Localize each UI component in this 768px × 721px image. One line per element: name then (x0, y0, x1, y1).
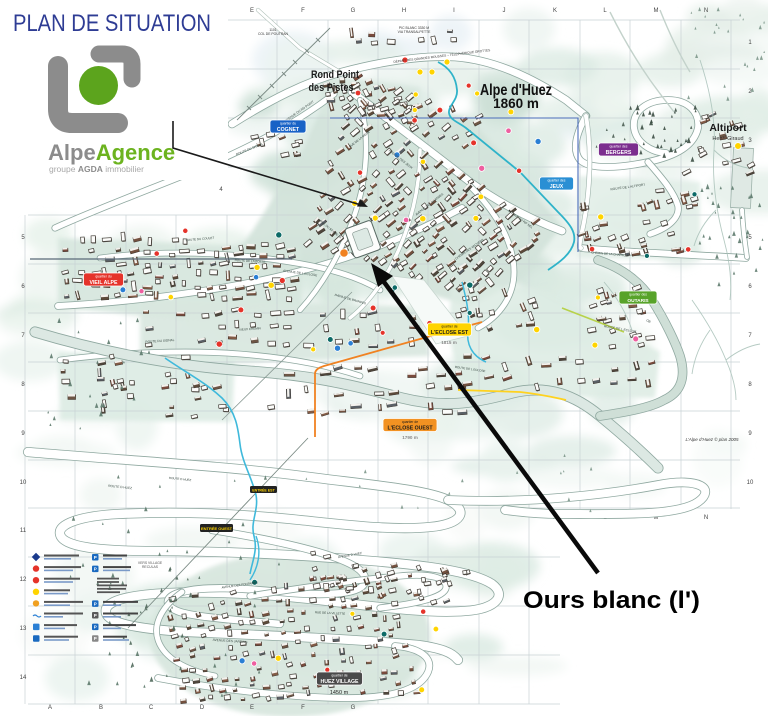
svg-text:12: 12 (20, 577, 27, 583)
svg-text:ENTRÉE EST: ENTRÉE EST (252, 488, 275, 493)
svg-text:Rond Point: Rond Point (311, 69, 359, 81)
svg-text:11: 11 (20, 528, 27, 534)
svg-text:COL DE POUTRAN: COL DE POUTRAN (258, 32, 289, 36)
svg-text:1815 m: 1815 m (441, 340, 457, 345)
svg-text:B: B (99, 705, 103, 711)
svg-text:10: 10 (747, 480, 754, 486)
svg-text:des Pistes: des Pistes (309, 82, 354, 94)
svg-text:M: M (654, 8, 659, 14)
svg-text:quartier du: quartier du (95, 275, 111, 279)
svg-text:quartier de: quartier de (402, 420, 418, 424)
svg-text:F: F (301, 8, 305, 14)
svg-text:1450 m: 1450 m (330, 690, 349, 696)
svg-text:HUEZ VILLAGE: HUEZ VILLAGE (320, 679, 359, 685)
svg-text:Altiport: Altiport (709, 122, 747, 134)
svg-text:RECULAS: RECULAS (142, 565, 159, 569)
svg-text:1790 m: 1790 m (402, 435, 418, 440)
svg-text:P: P (94, 555, 97, 560)
svg-text:VIA TRANSALPETTE: VIA TRANSALPETTE (398, 30, 431, 34)
svg-text:COGNET: COGNET (277, 127, 300, 133)
svg-text:quartier de: quartier de (441, 325, 457, 329)
svg-text:P: P (94, 636, 97, 641)
svg-text:P: P (94, 567, 97, 572)
svg-text:D: D (200, 705, 205, 711)
svg-text:P: P (94, 625, 97, 630)
svg-text:groupe AGDA immobilier: groupe AGDA immobilier (49, 164, 144, 174)
svg-text:F: F (301, 705, 305, 711)
svg-text:P: P (94, 613, 97, 618)
svg-text:ENTRÉE OUEST: ENTRÉE OUEST (201, 526, 233, 531)
svg-text:E: E (250, 705, 254, 711)
svg-text:G: G (351, 705, 356, 711)
svg-text:BERGERS: BERGERS (606, 150, 632, 156)
svg-text:Ours blanc (l'): Ours blanc (l') (523, 587, 700, 614)
svg-text:G: G (351, 8, 356, 14)
svg-text:VIEIL ALPE: VIEIL ALPE (90, 280, 119, 286)
svg-text:JEUX: JEUX (550, 184, 564, 190)
svg-text:quartier des: quartier des (548, 179, 566, 183)
svg-text:quartier des: quartier des (610, 145, 628, 149)
svg-text:A: A (48, 705, 52, 711)
svg-text:K: K (553, 8, 557, 14)
svg-text:14: 14 (20, 675, 27, 681)
svg-text:quartier du: quartier du (280, 122, 296, 126)
svg-text:L'ECLOSE EST: L'ECLOSE EST (431, 330, 469, 336)
svg-text:1860 m: 1860 m (493, 96, 539, 111)
svg-text:N: N (704, 515, 708, 521)
svg-text:N: N (704, 8, 708, 14)
svg-text:E: E (250, 8, 254, 14)
svg-text:Henri Giraud: Henri Giraud (712, 136, 743, 142)
svg-text:quartier de: quartier de (331, 674, 347, 678)
svg-text:13: 13 (20, 626, 27, 632)
svg-text:10: 10 (20, 480, 27, 486)
svg-text:OUTARIS: OUTARIS (627, 298, 649, 304)
svg-text:C: C (149, 705, 154, 711)
svg-text:P: P (94, 601, 97, 606)
svg-text:J: J (503, 8, 506, 14)
svg-text:PLAN DE SITUATION: PLAN DE SITUATION (13, 10, 211, 37)
svg-text:L’Alpe d’Huez © plan 2005: L’Alpe d’Huez © plan 2005 (685, 436, 739, 442)
svg-text:quartier des: quartier des (629, 293, 647, 297)
svg-text:H: H (402, 8, 406, 14)
svg-text:L'ECLOSE OUEST: L'ECLOSE OUEST (387, 426, 433, 432)
svg-text:AlpeAgence: AlpeAgence (48, 140, 175, 165)
